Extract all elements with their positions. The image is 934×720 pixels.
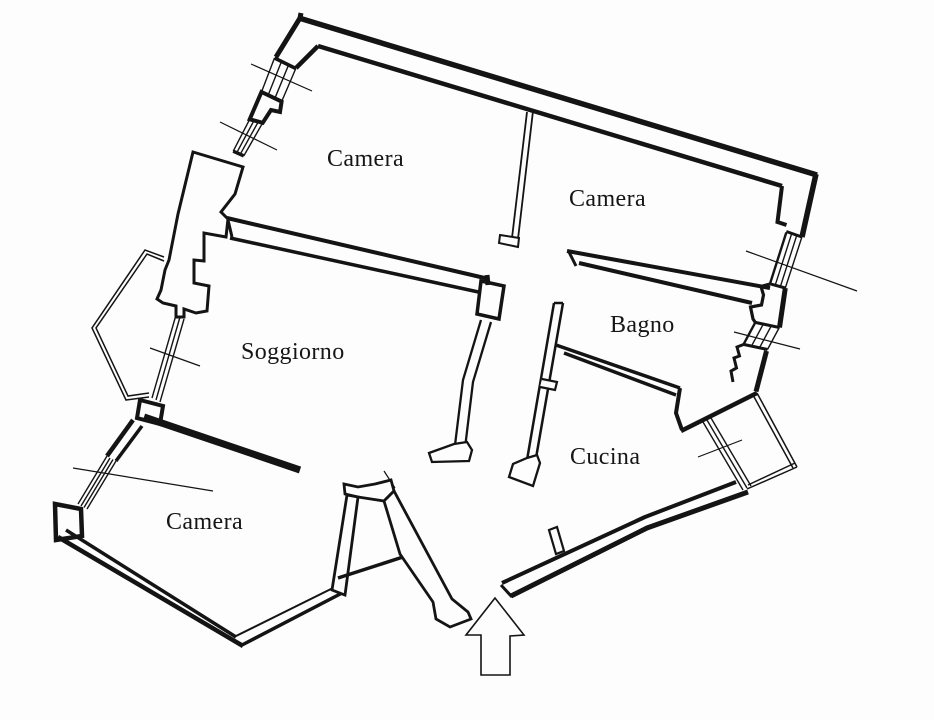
svg-text:Camera: Camera — [569, 186, 646, 212]
svg-text:Bagno: Bagno — [610, 312, 675, 338]
svg-text:Camera: Camera — [166, 509, 243, 535]
svg-text:Cucina: Cucina — [570, 444, 640, 470]
svg-text:Camera: Camera — [327, 146, 404, 172]
svg-text:Soggiorno: Soggiorno — [241, 339, 345, 365]
